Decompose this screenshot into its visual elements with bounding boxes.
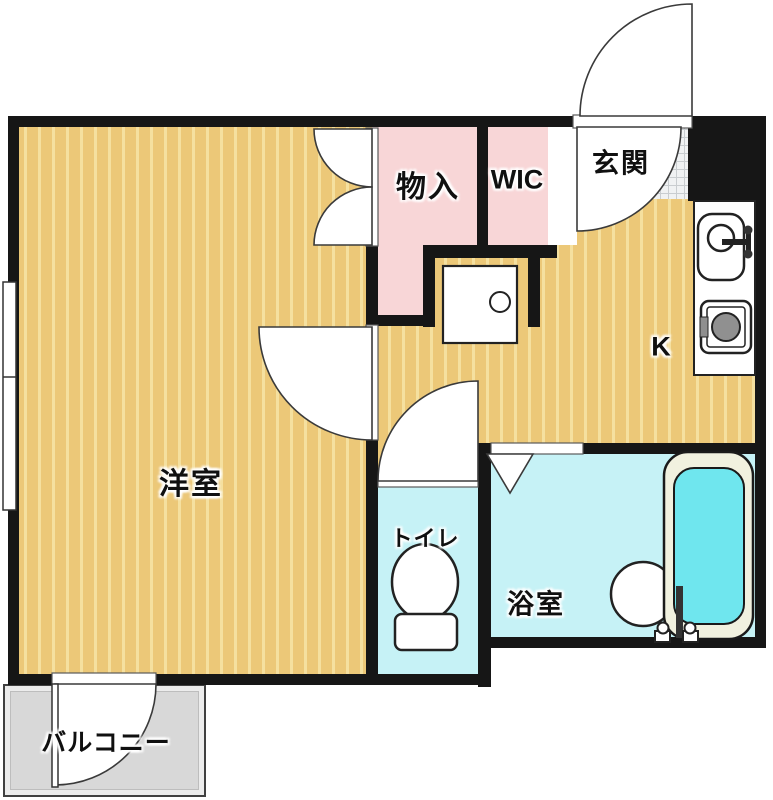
kitchen-counter [694,201,755,375]
plan-overlay [0,0,773,800]
toilet-door-swing [378,381,478,481]
wall-westernroom-lower [366,440,378,674]
washing-machine-pan-icon [443,266,517,343]
wall-pillar-top-right [688,116,766,201]
stove-icon [700,301,751,353]
bath-door-opening [491,443,583,454]
wall-top [8,116,573,127]
wall-laundry-left [423,247,435,327]
floor-plan-canvas: 洋室 物入 WIC 玄関 K トイレ 浴室 バルコニー [0,0,773,800]
bathroom-fixtures [611,452,753,642]
toilet-icon [392,544,458,650]
label-entrance: 玄関 [592,142,650,181]
label-wic: WIC [491,165,543,196]
storage-double-door-bottom [314,187,372,245]
entrance-outer-swing [580,4,692,116]
bath-folding-door-icon [487,454,533,493]
label-balcony: バルコニー [41,723,171,759]
westernroom-door-swing [259,327,372,440]
label-western-room: 洋室 [159,459,223,503]
wall-bath-top [583,443,766,454]
wall-storage-bottom [366,315,423,326]
label-bathroom: 浴室 [507,583,565,622]
wall-storage-wic-divider [477,127,488,247]
storage-double-door-top [314,129,372,187]
wall-laundry-right [528,247,540,327]
wall-westernroom-mid [366,246,378,326]
label-storage: 物入 [396,162,460,206]
wall-toilet-right [478,443,491,687]
kitchen-sink-icon [698,214,753,280]
label-kitchen: K [651,332,671,363]
label-toilet: トイレ [390,521,459,553]
window-left [3,282,16,510]
faucet-spout [722,239,748,245]
wall-right [755,201,766,648]
entrance-door-leaf [573,115,692,128]
